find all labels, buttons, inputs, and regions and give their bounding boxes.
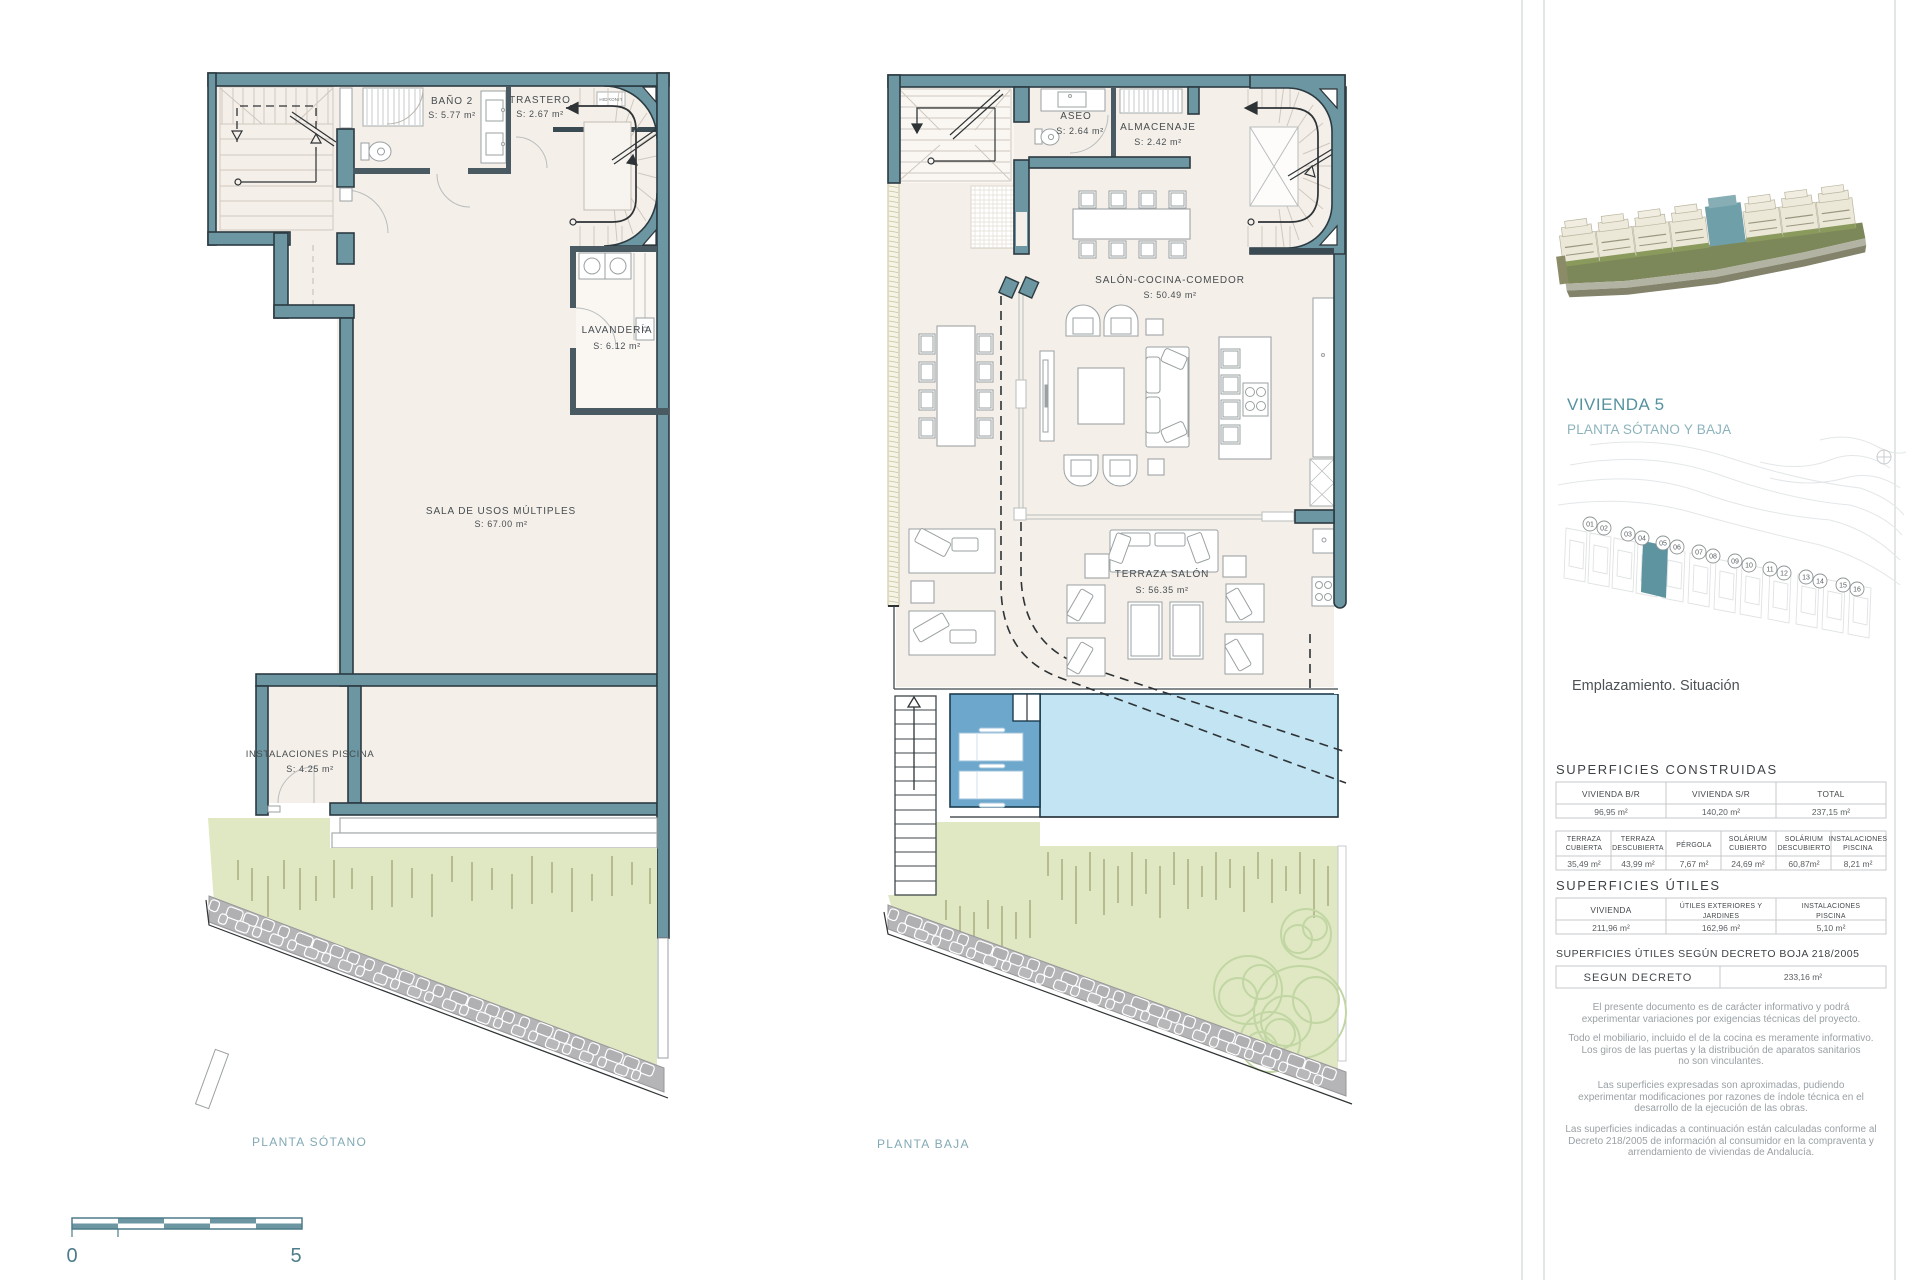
svg-text:12: 12 — [1780, 571, 1788, 578]
svg-text:LAVANDERÍA: LAVANDERÍA — [582, 323, 653, 336]
svg-text:TERRAZA: TERRAZA — [1621, 836, 1655, 843]
svg-text:experimentar variaciones por e: experimentar variaciones por exigencias … — [1582, 1014, 1860, 1025]
svg-text:ALMACENAJE: ALMACENAJE — [1120, 122, 1196, 133]
svg-text:VIVIENDA 5: VIVIENDA 5 — [1567, 395, 1665, 414]
svg-text:S: 50.49 m²: S: 50.49 m² — [1143, 290, 1196, 300]
svg-text:SUPERFICIES ÚTILES SEGÚN DECRE: SUPERFICIES ÚTILES SEGÚN DECRETO BOJA 21… — [1556, 947, 1860, 960]
svg-text:PLANTA BAJA: PLANTA BAJA — [877, 1137, 970, 1151]
svg-text:VIVIENDA B/R: VIVIENDA B/R — [1582, 789, 1640, 799]
svg-text:VIVIENDA: VIVIENDA — [1590, 905, 1631, 915]
svg-text:15: 15 — [1839, 583, 1847, 590]
svg-text:11: 11 — [1766, 567, 1773, 574]
svg-text:El presente documento es de ca: El presente documento es de carácter inf… — [1593, 1002, 1850, 1013]
svg-text:ÚTILES EXTERIORES Y: ÚTILES EXTERIORES Y — [1680, 901, 1763, 910]
svg-text:S: 5.77 m²: S: 5.77 m² — [428, 110, 476, 120]
svg-text:CUBIERTA: CUBIERTA — [1566, 845, 1603, 852]
svg-text:24,69 m²: 24,69 m² — [1731, 859, 1765, 869]
svg-text:CUBIERTO: CUBIERTO — [1729, 845, 1767, 852]
svg-text:162,96 m²: 162,96 m² — [1702, 923, 1740, 933]
svg-text:Las superficies expresadas son: Las superficies expresadas son aproximad… — [1598, 1080, 1845, 1091]
svg-text:TOTAL: TOTAL — [1817, 789, 1845, 799]
svg-text:BAÑO 2: BAÑO 2 — [431, 94, 473, 107]
svg-text:09: 09 — [1731, 559, 1739, 566]
svg-text:arrendamiento de viviendas de: arrendamiento de viviendas de Andalucía. — [1628, 1147, 1814, 1158]
svg-text:TERRAZA SALÓN: TERRAZA SALÓN — [1115, 567, 1210, 580]
svg-text:01: 01 — [1586, 522, 1594, 529]
svg-text:SUPERFICIES ÚTILES: SUPERFICIES ÚTILES — [1556, 878, 1721, 893]
svg-text:INSTALACIONES: INSTALACIONES — [1829, 836, 1888, 843]
svg-text:0: 0 — [66, 1245, 77, 1267]
svg-text:07: 07 — [1695, 550, 1703, 557]
svg-text:233,16 m²: 233,16 m² — [1784, 972, 1822, 982]
svg-text:INSTALACIONES PISCINA: INSTALACIONES PISCINA — [246, 749, 375, 760]
svg-text:237,15 m²: 237,15 m² — [1812, 807, 1850, 817]
svg-text:S: 67.00 m²: S: 67.00 m² — [474, 519, 527, 529]
svg-text:DESCUBIERTO: DESCUBIERTO — [1778, 845, 1831, 852]
svg-text:Los giros de las puertas y la: Los giros de las puertas y la distribuci… — [1581, 1045, 1860, 1056]
svg-text:96,95 m²: 96,95 m² — [1594, 807, 1628, 817]
svg-text:SOLÁRIUM: SOLÁRIUM — [1729, 834, 1767, 843]
svg-text:DESCUBIERTA: DESCUBIERTA — [1612, 845, 1664, 852]
svg-text:PLANTA SÓTANO Y BAJA: PLANTA SÓTANO Y BAJA — [1567, 422, 1731, 437]
svg-text:06: 06 — [1673, 545, 1681, 552]
svg-text:03: 03 — [1624, 532, 1632, 539]
svg-text:no son vinculantes.: no son vinculantes. — [1678, 1056, 1764, 1067]
svg-text:43,99 m²: 43,99 m² — [1621, 859, 1655, 869]
svg-text:S: 6.12 m²: S: 6.12 m² — [593, 341, 641, 351]
svg-text:16: 16 — [1853, 587, 1861, 594]
svg-text:60,87m²: 60,87m² — [1788, 859, 1819, 869]
svg-text:8,21 m²: 8,21 m² — [1844, 859, 1873, 869]
svg-text:PISCINA: PISCINA — [1843, 845, 1873, 852]
svg-text:04: 04 — [1638, 536, 1646, 543]
svg-text:S: 2.67 m²: S: 2.67 m² — [516, 109, 564, 119]
svg-text:SUPERFICIES CONSTRUIDAS: SUPERFICIES CONSTRUIDAS — [1556, 762, 1778, 777]
svg-text:PISCINA: PISCINA — [1816, 913, 1846, 920]
svg-text:SOLÁRIUM: SOLÁRIUM — [1785, 834, 1823, 843]
svg-text:10: 10 — [1745, 563, 1753, 570]
svg-text:JARDINES: JARDINES — [1703, 913, 1740, 920]
svg-text:140,20 m²: 140,20 m² — [1702, 807, 1740, 817]
svg-text:Las superficies indicadas a co: Las superficies indicadas a continuación… — [1565, 1124, 1876, 1135]
svg-text:Emplazamiento. Situación: Emplazamiento. Situación — [1572, 678, 1740, 694]
svg-text:TRASTERO: TRASTERO — [509, 95, 571, 106]
svg-text:Decreto 218/2005 de informació: Decreto 218/2005 de información al consu… — [1568, 1136, 1874, 1147]
svg-text:VIVIENDA S/R: VIVIENDA S/R — [1692, 789, 1750, 799]
svg-text:experimentar modificaciones po: experimentar modificaciones por razones … — [1578, 1092, 1864, 1103]
svg-text:PÉRGOLA: PÉRGOLA — [1676, 840, 1712, 849]
svg-text:7,67 m²: 7,67 m² — [1680, 859, 1709, 869]
svg-text:SALA DE USOS MÚLTIPLES: SALA DE USOS MÚLTIPLES — [426, 504, 576, 517]
svg-text:ASEO: ASEO — [1060, 111, 1091, 122]
svg-text:35,49 m²: 35,49 m² — [1567, 859, 1601, 869]
svg-text:13: 13 — [1802, 575, 1810, 582]
svg-text:PLANTA SÓTANO: PLANTA SÓTANO — [252, 1134, 367, 1149]
svg-text:S: 56.35 m²: S: 56.35 m² — [1135, 585, 1188, 595]
svg-text:S: 4.25 m²: S: 4.25 m² — [286, 764, 334, 774]
svg-text:TERRAZA: TERRAZA — [1567, 836, 1601, 843]
svg-text:desarrollo de la ejecución de: desarrollo de la ejecución de las obras. — [1634, 1103, 1807, 1114]
svg-text:02: 02 — [1600, 526, 1608, 533]
svg-text:5: 5 — [290, 1245, 301, 1267]
svg-text:211,96 m²: 211,96 m² — [1592, 923, 1630, 933]
svg-text:HIDRONIT: HIDRONIT — [599, 97, 622, 102]
svg-text:INSTALACIONES: INSTALACIONES — [1802, 903, 1861, 910]
svg-text:S: 2.64 m²: S: 2.64 m² — [1056, 126, 1104, 136]
svg-text:14: 14 — [1816, 579, 1824, 586]
svg-text:S: 2.42 m²: S: 2.42 m² — [1134, 137, 1182, 147]
svg-text:05: 05 — [1659, 541, 1667, 548]
svg-text:08: 08 — [1709, 554, 1717, 561]
svg-text:SALÓN-COCINA-COMEDOR: SALÓN-COCINA-COMEDOR — [1095, 273, 1245, 286]
svg-text:SEGUN DECRETO: SEGUN DECRETO — [1584, 972, 1693, 984]
svg-text:Todo el mobiliario, incluido e: Todo el mobiliario, incluido el de la co… — [1568, 1033, 1873, 1044]
svg-text:5,10 m²: 5,10 m² — [1817, 923, 1846, 933]
